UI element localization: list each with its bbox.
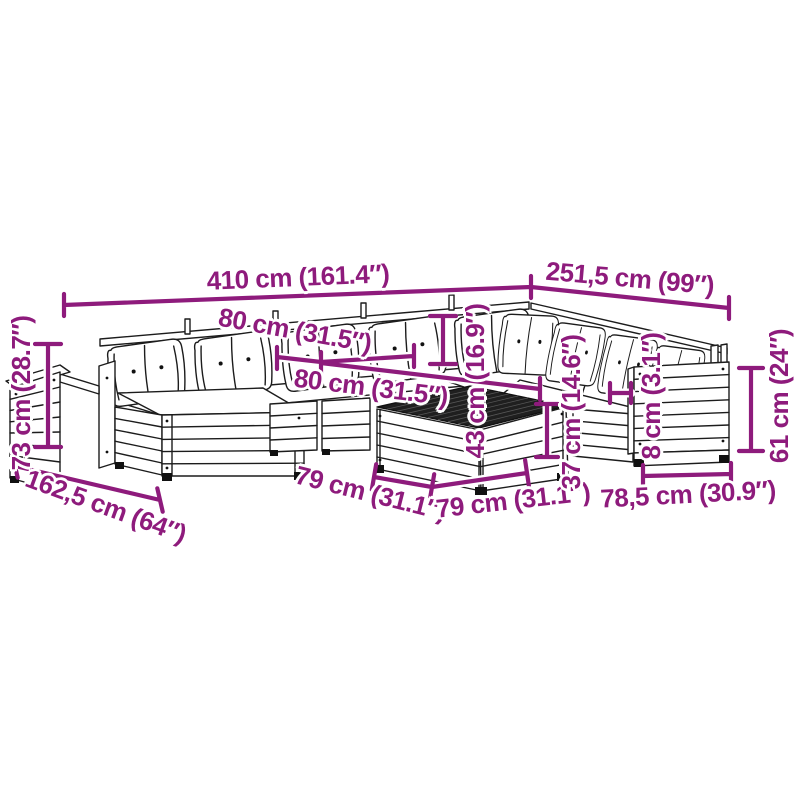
dim-seat-height-label: 37 cm (14.6″) (558, 335, 584, 490)
dim-armrest-width-label: 8 cm (3.1″) (638, 333, 664, 460)
dim-backrest-height-label: 43 cm (16.9″) (462, 304, 488, 459)
dim-left-height-label: 73 cm (28.7″) (8, 316, 34, 471)
dim-total-width-label: 410 cm (161.4″) (206, 260, 390, 294)
dim-armrest-height-label: 61 cm (24″) (766, 329, 792, 463)
dim-line-armrest-height (739, 368, 763, 451)
dimension-diagram: 410 cm (161.4″) 251,5 cm (99″) 80 cm (31… (0, 0, 800, 800)
